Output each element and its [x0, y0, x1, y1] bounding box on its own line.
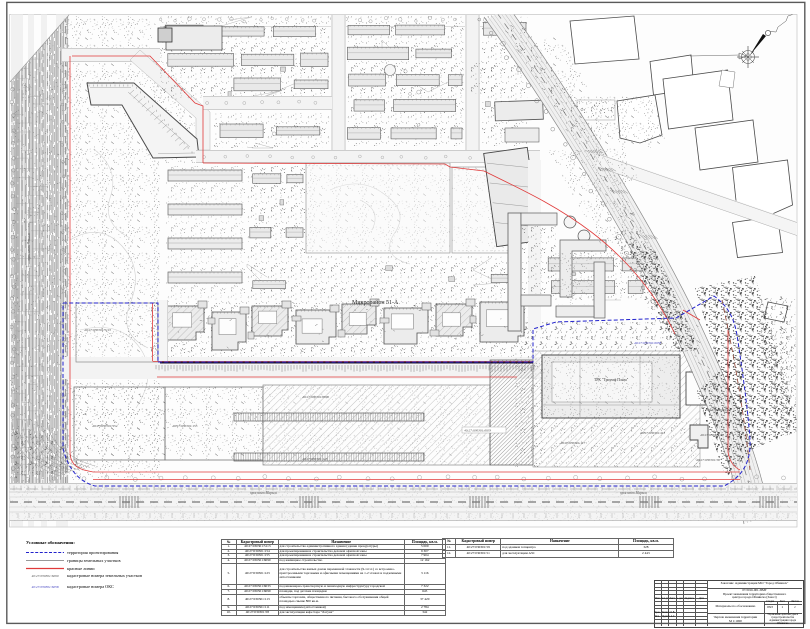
svg-text:Микрорайон 51-А: Микрорайон 51-А	[352, 299, 399, 306]
svg-text:проспект Маркса: проспект Маркса	[620, 491, 647, 495]
svg-text:40:27:030301:111: 40:27:030301:111	[640, 431, 665, 435]
svg-text:40:27:030301:51: 40:27:030301:51	[707, 408, 731, 412]
svg-text:40:27:030301:6033: 40:27:030301:6033	[464, 429, 491, 433]
svg-text:40:27:030301:154: 40:27:030301:154	[92, 424, 118, 428]
svg-text:ТРК "Триумф Плаза": ТРК "Триумф Плаза"	[594, 378, 629, 382]
svg-text:40:27:030301:123: 40:27:030301:123	[302, 457, 328, 461]
svg-text:40:27:030301:6058: 40:27:030301:6058	[634, 341, 661, 345]
svg-text:40:27:030301:117: 40:27:030301:117	[560, 441, 585, 445]
svg-text:40:27:030301:5113: 40:27:030301:5113	[84, 328, 111, 332]
svg-text:40:27:030301:6090: 40:27:030301:6090	[302, 395, 329, 399]
svg-text:проспект Ленина: проспект Ленина	[27, 233, 31, 260]
svg-text:40:27:030301:58: 40:27:030301:58	[696, 458, 720, 462]
svg-text:40:27:030301:59: 40:27:030301:59	[700, 433, 724, 437]
svg-text:40:27:030301:155: 40:27:030301:155	[172, 424, 198, 428]
svg-text:проспект Маркса: проспект Маркса	[250, 491, 277, 495]
